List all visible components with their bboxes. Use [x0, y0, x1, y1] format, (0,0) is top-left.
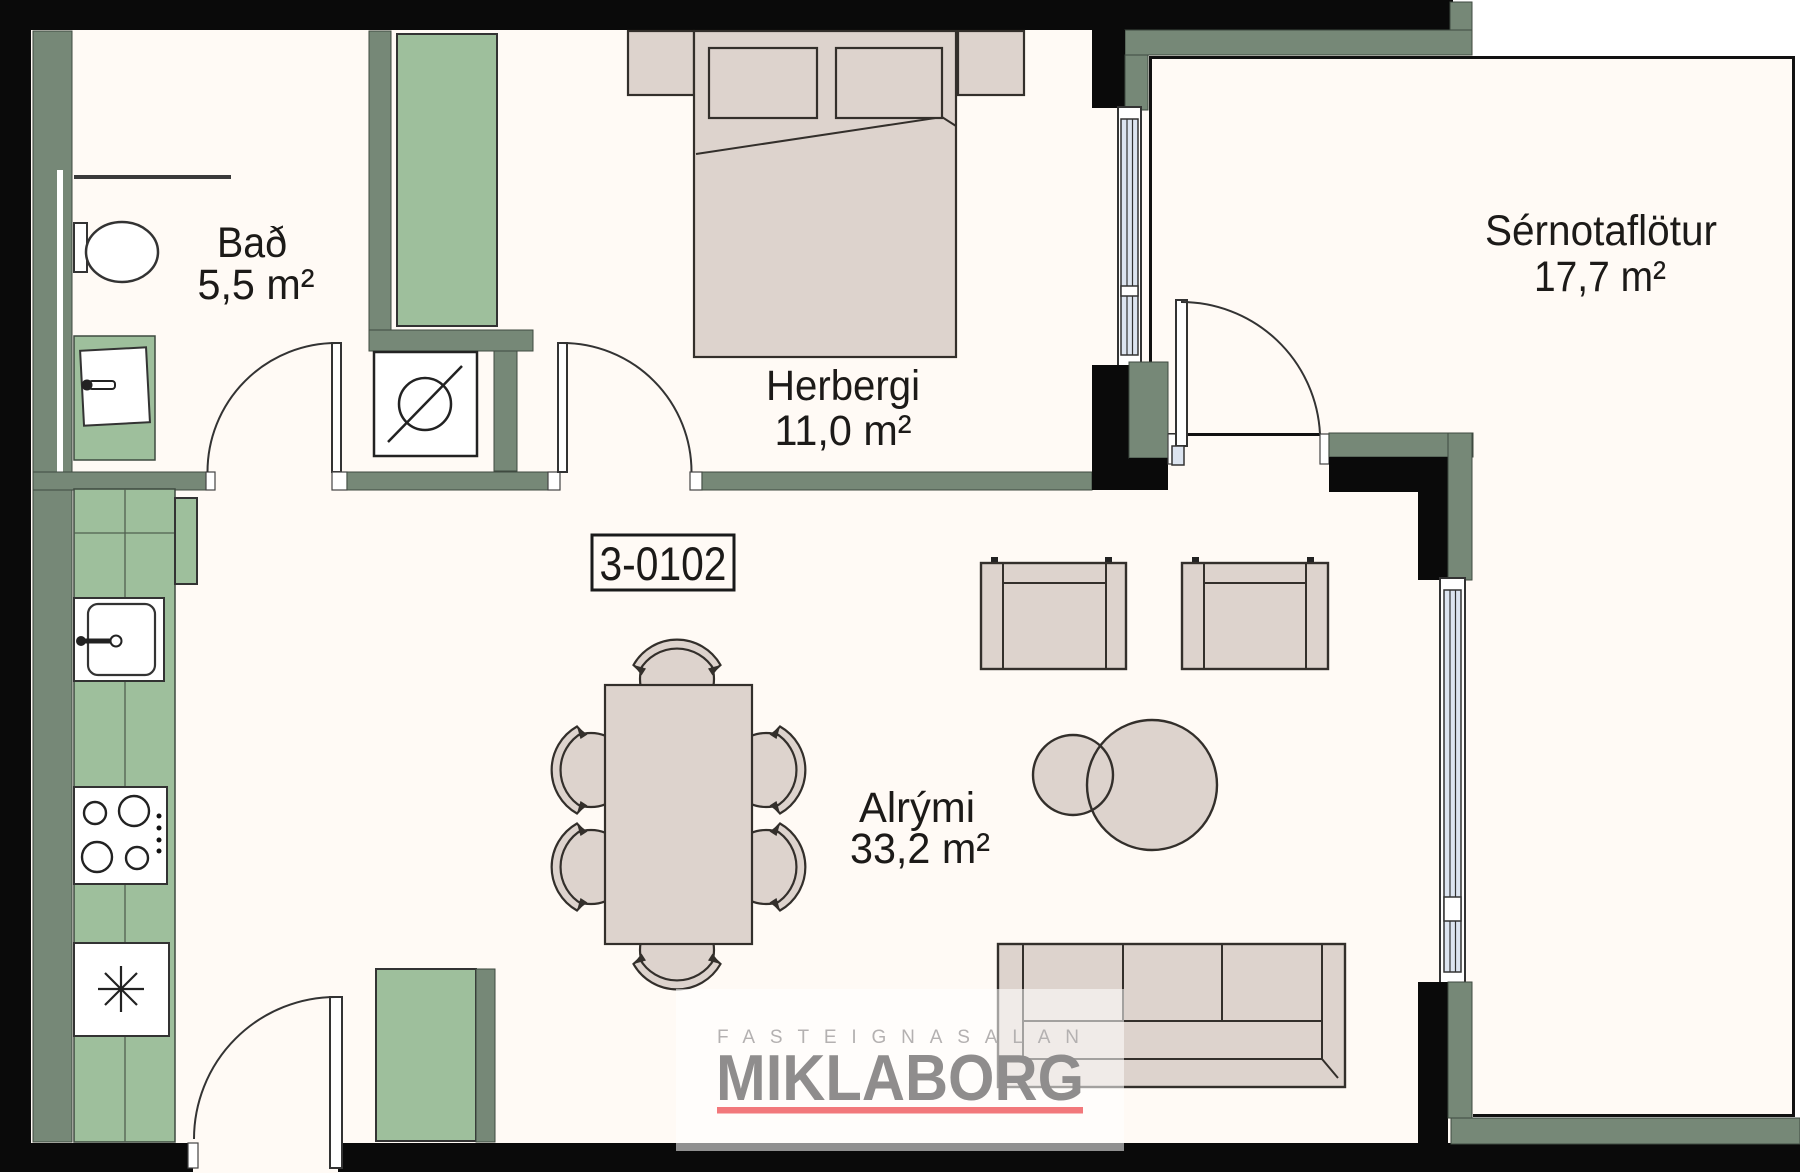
svg-text:5,5 m²: 5,5 m²	[198, 261, 315, 309]
svg-text:33,2 m²: 33,2 m²	[850, 825, 990, 873]
svg-text:Sérnotaflötur: Sérnotaflötur	[1485, 207, 1717, 255]
svg-text:17,7 m²: 17,7 m²	[1534, 253, 1666, 301]
svg-text:Bað: Bað	[217, 219, 287, 267]
svg-text:MIKLABORG: MIKLABORG	[716, 1041, 1084, 1114]
svg-text:11,0 m²: 11,0 m²	[775, 407, 912, 455]
svg-text:3-0102: 3-0102	[600, 537, 727, 590]
svg-text:Herbergi: Herbergi	[766, 362, 920, 410]
